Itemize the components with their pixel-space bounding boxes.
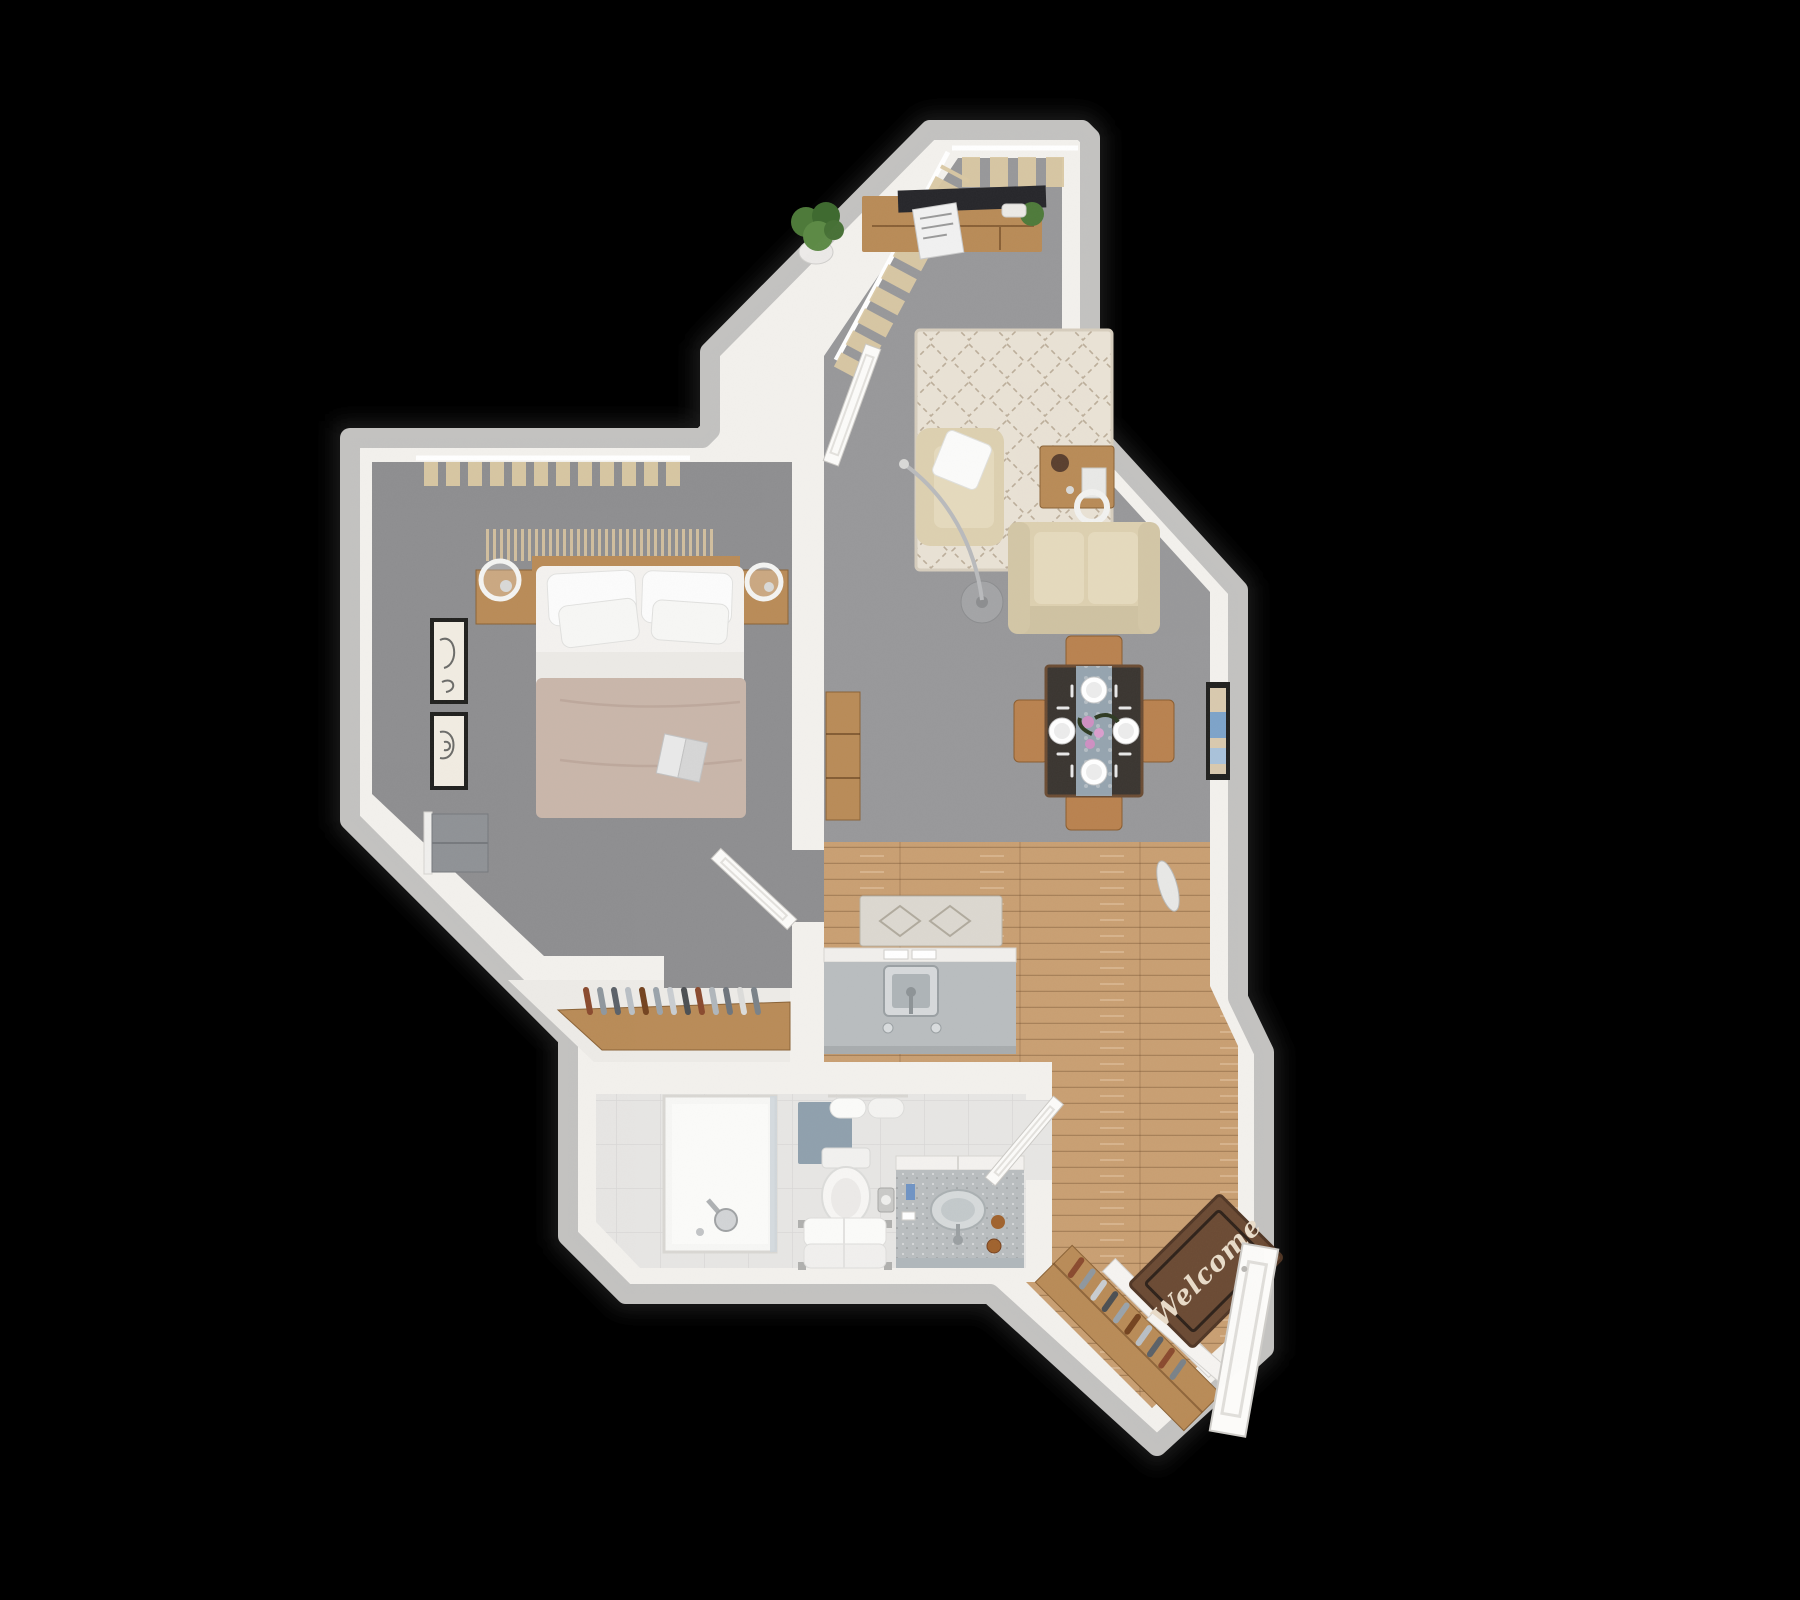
floor-plan-svg: Welcome — [0, 0, 1800, 1600]
